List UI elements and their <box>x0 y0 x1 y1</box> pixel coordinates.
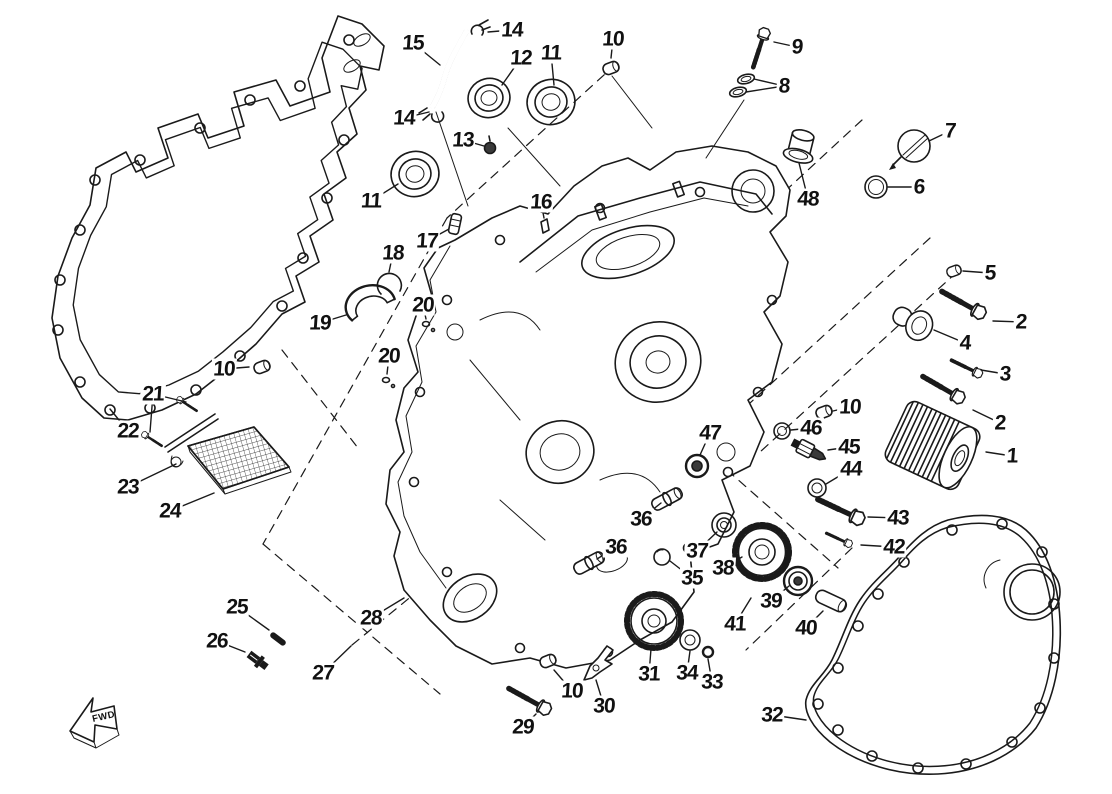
hose-clamp <box>419 108 444 122</box>
o-ring <box>703 647 713 657</box>
parts-diagram-page: FWD 151412111098487652432114131117161819… <box>0 0 1112 794</box>
oil-dipstick <box>889 130 930 170</box>
right-parts <box>865 130 988 493</box>
bearing <box>464 74 514 122</box>
breather-cap <box>782 127 819 166</box>
o-ring <box>774 423 790 439</box>
woodruff-key <box>541 219 549 233</box>
washer <box>808 479 826 497</box>
hose-clamp <box>471 20 490 35</box>
o-ring <box>729 73 756 99</box>
drain-bolt <box>245 649 270 673</box>
left-cover-gasket <box>52 16 384 420</box>
strainer-screen <box>188 427 291 494</box>
split-bushing <box>342 281 397 322</box>
fwd-arrow: FWD <box>70 698 119 748</box>
check-ball <box>485 136 496 154</box>
o-ring <box>865 176 887 198</box>
bearing <box>522 74 579 129</box>
driven-gear <box>735 525 789 579</box>
bearing <box>386 146 443 201</box>
diagram-canvas: FWD <box>0 0 1112 794</box>
filter-spring-cup <box>887 300 937 345</box>
dowel-pin <box>269 631 287 647</box>
pin <box>814 588 848 613</box>
dowel-pin <box>448 213 462 235</box>
ball <box>654 549 670 565</box>
strainer-group <box>140 395 291 672</box>
right-cover-gasket <box>806 515 1061 774</box>
bearing <box>784 567 812 595</box>
washer <box>680 630 700 650</box>
crankcase-body <box>386 146 790 668</box>
oil-sensor <box>789 436 828 465</box>
oil-filter-element <box>882 399 984 493</box>
